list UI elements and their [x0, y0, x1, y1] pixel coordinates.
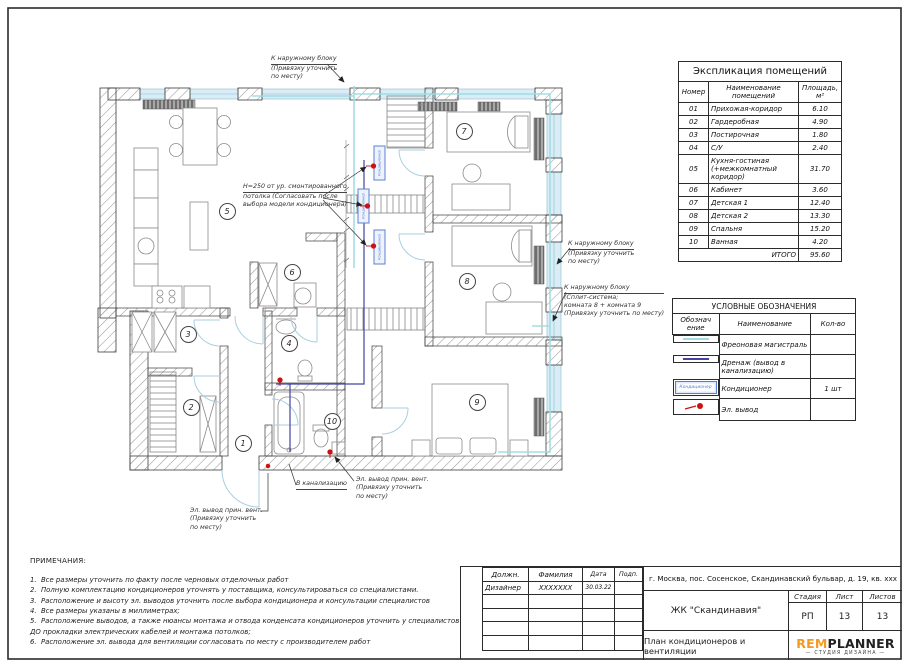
- room-number-10: 10: [324, 413, 341, 430]
- object-address: г. Москва, пос. Сосенское, Скандинавский…: [644, 567, 902, 591]
- ac-unit-label: Кондиционер: [378, 233, 382, 259]
- date-value: 30.03.22: [582, 581, 614, 595]
- ac-unit-symbol: Кондиционер: [675, 381, 717, 394]
- table-header-row: Должн. Фамилия Дата Подп.: [483, 568, 643, 582]
- callout-to-outdoor-unit-top: К наружному блоку (Привязку уточнить по …: [271, 55, 337, 81]
- signature-cell: [614, 581, 642, 595]
- project-name: ЖК "Скандинавия": [644, 591, 788, 630]
- sheets-value: 13: [863, 603, 902, 630]
- ac-unit-label: Кондиционер: [378, 149, 382, 175]
- room-number-9: 9: [469, 394, 486, 411]
- col-header-num: Номер: [679, 82, 709, 103]
- room-number-6: 6: [284, 264, 301, 281]
- callout-split-system: К наружному блоку (Сплит-система; комнат…: [564, 284, 664, 319]
- remplanner-logo: REMPLANNER СТУДИЯ ДИЗАЙНА: [789, 631, 902, 660]
- table-header-row: Номер Наименование помещений Площадь, м²: [679, 82, 842, 103]
- table-row: 05Кухня-гостиная (+межкомнатный коридор)…: [679, 155, 842, 184]
- total-label: ИТОГО: [679, 249, 799, 262]
- table-row: [483, 608, 643, 622]
- table-total-row: ИТОГО 95.60: [679, 249, 842, 262]
- callout-h250: H=250 от ур. смонтированного потолка (Со…: [243, 183, 347, 209]
- callout-vent-outlet-left: Эл. вывод прин. вент. (Привязку уточнить…: [190, 507, 263, 532]
- table-row: 08Детская 213.30: [679, 210, 842, 223]
- stage-value: РП: [789, 603, 827, 630]
- legend-table: УСЛОВНЫЕ ОБОЗНАЧЕНИЯ Обознач ение Наимен…: [672, 298, 856, 421]
- room-number-8: 8: [459, 273, 476, 290]
- legend-row-outlet: Эл. вывод: [673, 399, 856, 421]
- note-item: 5. Расположение выводов, а также нюансы …: [30, 616, 464, 637]
- el-outlet-symbol: [683, 402, 709, 412]
- table-title-row: УСЛОВНЫЕ ОБОЗНАЧЕНИЯ: [673, 299, 856, 314]
- col-header-name: Наименование: [719, 314, 811, 335]
- table-row: 09Спальня15.20: [679, 223, 842, 236]
- sheets-label: Листов: [863, 591, 902, 603]
- callout-to-sewer: В канализацию: [296, 480, 347, 490]
- table-row: 01Прихожая-коридор6.10: [679, 103, 842, 116]
- table-row: [483, 595, 643, 609]
- room-number-3: 3: [180, 326, 197, 343]
- table-row: [483, 622, 643, 636]
- room-number-4: 4: [281, 335, 298, 352]
- table-row: 06Кабинет3.60: [679, 184, 842, 197]
- col-header-name: Наименование помещений: [709, 82, 799, 103]
- drawing-title: План кондиционеров и вентиляции: [644, 631, 789, 660]
- sheet-value: 13: [827, 603, 863, 630]
- room-explication-table: Экспликация помещений Номер Наименование…: [678, 61, 842, 262]
- signature-table: Должн. Фамилия Дата Подп. Дизайнер XXXXX…: [482, 567, 643, 651]
- room-number-1: 1: [235, 435, 252, 452]
- legend-row-ac: Кондиционер Кондиционер 1 шт: [673, 379, 856, 399]
- stage-sheet-grid: Стадия Лист Листов РП 13 13: [788, 591, 902, 630]
- logo-subtitle: СТУДИЯ ДИЗАЙНА: [806, 651, 886, 656]
- stamp-right-pane: г. Москва, пос. Сосенское, Скандинавский…: [643, 567, 902, 660]
- legend-row-drain: Дренаж (вывод в канализацию): [673, 355, 856, 379]
- table-row: 10Ванная4.20: [679, 236, 842, 249]
- sheet-label: Лист: [827, 591, 863, 603]
- note-item: 3. Расположение и высоту эл. выводов уто…: [30, 596, 464, 606]
- table-title-row: Экспликация помещений: [679, 62, 842, 82]
- table-row: Дизайнер XXXXXXX 30.03.22: [483, 581, 643, 595]
- col-header-area: Площадь, м²: [799, 82, 842, 103]
- note-item: 1. Все размеры уточнить по факту после ч…: [30, 575, 464, 585]
- note-item: 6. Расположение эл. вывода для вентиляци…: [30, 637, 464, 647]
- table-row: 04С/У2.40: [679, 142, 842, 155]
- explication-title: Экспликация помещений: [679, 62, 842, 82]
- room-number-7: 7: [456, 123, 473, 140]
- note-item: 4. Все размеры указаны в миллиметрах;: [30, 606, 464, 616]
- total-value: 95.60: [799, 249, 842, 262]
- table-header-row: Обознач ение Наименование Кол-во: [673, 314, 856, 335]
- freon-line-symbol: [683, 338, 709, 340]
- notes-block: ПРИМЕЧАНИЯ: 1. Все размеры уточнить по ф…: [30, 556, 464, 647]
- notes-title: ПРИМЕЧАНИЯ:: [30, 556, 464, 567]
- drawing-sheet: Кондиционер Кондиционер Кондиционер: [0, 0, 910, 666]
- col-header-qty: Кол-во: [811, 314, 856, 335]
- room-number-2: 2: [183, 399, 200, 416]
- callout-vent-outlet-right: Эл. вывод прин. вент. (Привязку уточнить…: [356, 476, 429, 501]
- stage-label: Стадия: [789, 591, 827, 603]
- table-row: 02Гардеробная4.90: [679, 116, 842, 129]
- col-header-symbol: Обознач ение: [673, 314, 720, 335]
- title-block: Должн. Фамилия Дата Подп. Дизайнер XXXXX…: [460, 566, 901, 659]
- legend-row-freon: Фреоновая магистраль: [673, 335, 856, 355]
- callout-to-outdoor-unit-right: К наружному блоку (Привязку уточнить по …: [568, 240, 634, 266]
- note-item: 2. Полную комплектацию кондиционеров уто…: [30, 585, 464, 595]
- drain-line-symbol: [683, 358, 709, 360]
- legend-title: УСЛОВНЫЕ ОБОЗНАЧЕНИЯ: [673, 299, 856, 314]
- table-row: 07Детская 112.40: [679, 197, 842, 210]
- designer-role: Дизайнер: [483, 581, 529, 595]
- room-number-5: 5: [219, 203, 236, 220]
- designer-name: XXXXXXX: [529, 581, 583, 595]
- table-row: [483, 635, 643, 650]
- table-row: 03Постирочная1.80: [679, 129, 842, 142]
